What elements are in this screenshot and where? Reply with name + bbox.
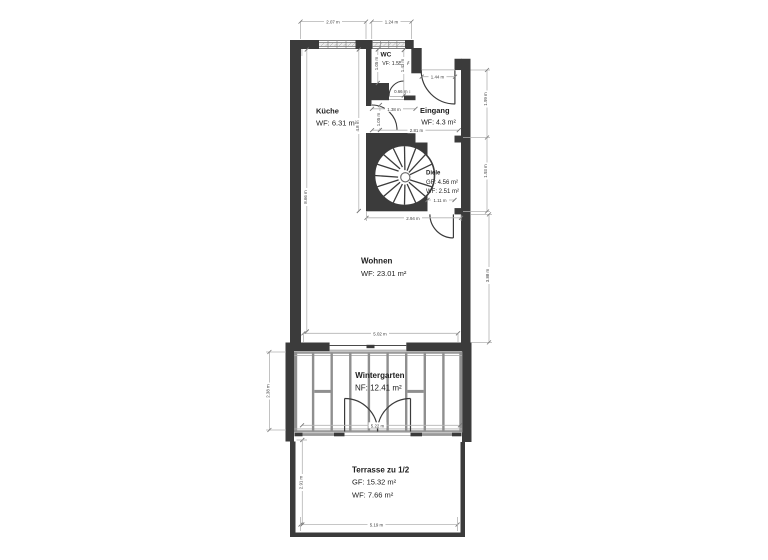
svg-text:1.43 m: 1.43 m — [400, 58, 405, 72]
svg-text:1.11 m: 1.11 m — [433, 198, 446, 203]
svg-text:1.05 m: 1.05 m — [374, 56, 379, 70]
svg-text:WF: 6.31 m²: WF: 6.31 m² — [316, 119, 358, 128]
svg-text:2.81 m: 2.81 m — [410, 128, 424, 133]
svg-text:1.24 m: 1.24 m — [385, 20, 399, 25]
svg-text:1.99 m: 1.99 m — [483, 92, 488, 106]
svg-text:1.05 m: 1.05 m — [376, 112, 381, 126]
svg-text:Diele: Diele — [426, 171, 441, 177]
svg-text:5.02 m: 5.02 m — [373, 331, 387, 336]
svg-text:WF: 4.3 m²: WF: 4.3 m² — [421, 119, 456, 126]
svg-text:Eingang: Eingang — [420, 106, 450, 115]
svg-text:GF: 4.56 m²: GF: 4.56 m² — [426, 180, 458, 186]
svg-text:WF: 7.66 m²: WF: 7.66 m² — [352, 491, 394, 500]
svg-text:1.38 m: 1.38 m — [387, 107, 401, 112]
svg-text:1.93 m: 1.93 m — [483, 164, 488, 178]
svg-text:2.07 m: 2.07 m — [326, 20, 340, 25]
svg-text:Terrasse zu 1/2: Terrasse zu 1/2 — [352, 465, 410, 474]
svg-text:2.38 m: 2.38 m — [265, 384, 270, 398]
svg-text:Wohnen: Wohnen — [361, 256, 393, 265]
svg-text:3.88 m: 3.88 m — [485, 268, 490, 282]
svg-text:4.8 m: 4.8 m — [355, 120, 360, 131]
svg-text:5.22 m: 5.22 m — [371, 423, 385, 428]
svg-text:1.44 m: 1.44 m — [431, 75, 445, 80]
svg-text:WF: 23.01 m²: WF: 23.01 m² — [361, 269, 407, 278]
svg-text:2.94 m: 2.94 m — [406, 216, 420, 221]
svg-text:WC: WC — [381, 52, 392, 59]
svg-text:5.19 m: 5.19 m — [370, 523, 384, 528]
svg-text:GF: 15.32 m²: GF: 15.32 m² — [352, 478, 397, 487]
svg-text:0.66 m ↕: 0.66 m ↕ — [394, 89, 411, 94]
svg-text:Wintergarten: Wintergarten — [355, 371, 404, 380]
svg-text:Küche: Küche — [316, 107, 339, 116]
svg-text:NF: 12.41 m²: NF: 12.41 m² — [355, 383, 402, 392]
svg-text:2.91 m: 2.91 m — [298, 475, 303, 489]
svg-text:WF: 2.51 m²: WF: 2.51 m² — [426, 189, 459, 195]
svg-text:8.66 m: 8.66 m — [303, 190, 308, 204]
